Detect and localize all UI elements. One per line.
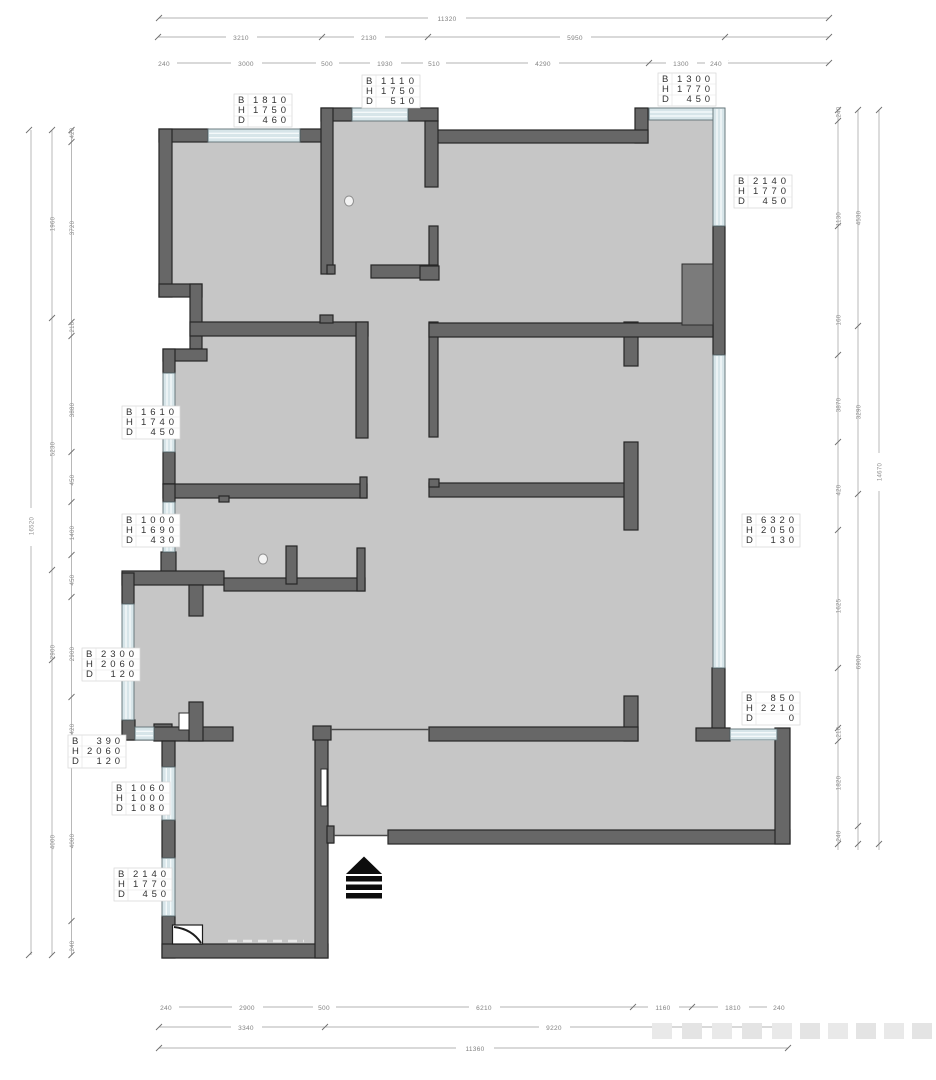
svg-text:240: 240: [70, 940, 76, 951]
svg-text:9220: 9220: [546, 1025, 562, 1032]
svg-text:14670: 14670: [878, 463, 884, 482]
svg-text:3870: 3870: [837, 397, 843, 412]
svg-text:240: 240: [160, 1005, 172, 1012]
svg-text:450: 450: [687, 94, 711, 105]
svg-text:1810: 1810: [725, 1005, 741, 1012]
svg-text:1960: 1960: [51, 216, 57, 231]
svg-text:4290: 4290: [535, 61, 551, 68]
svg-text:1300: 1300: [673, 61, 689, 68]
svg-text:5950: 5950: [567, 35, 583, 42]
svg-text:1130: 1130: [837, 212, 843, 226]
svg-text:3000: 3000: [238, 61, 254, 68]
svg-text:460: 460: [263, 115, 287, 126]
svg-text:5230: 5230: [51, 441, 57, 456]
svg-text:450: 450: [763, 196, 787, 207]
svg-text:510: 510: [391, 96, 415, 107]
svg-text:420: 420: [837, 484, 843, 495]
svg-text:450: 450: [151, 427, 175, 438]
svg-text:160: 160: [837, 314, 843, 325]
svg-text:1625: 1625: [837, 598, 843, 613]
svg-text:2900: 2900: [239, 1005, 255, 1012]
svg-text:210: 210: [70, 321, 76, 332]
svg-text:D: D: [746, 713, 753, 724]
svg-text:240: 240: [837, 106, 843, 117]
svg-text:1820: 1820: [837, 775, 843, 790]
svg-text:2900: 2900: [70, 646, 76, 661]
svg-text:4000: 4000: [51, 834, 57, 849]
svg-text:D: D: [738, 196, 745, 207]
svg-text:510: 510: [428, 61, 440, 68]
svg-text:210: 210: [837, 726, 843, 737]
svg-text:D: D: [86, 669, 93, 680]
svg-text:3210: 3210: [233, 35, 249, 42]
svg-text:450: 450: [70, 474, 76, 485]
svg-text:4000: 4000: [70, 833, 76, 848]
svg-text:D: D: [72, 756, 79, 767]
svg-text:1400: 1400: [70, 525, 76, 540]
svg-text:130: 130: [771, 535, 795, 546]
svg-text:D: D: [366, 96, 373, 107]
svg-text:D: D: [238, 115, 245, 126]
svg-text:D: D: [118, 889, 125, 900]
svg-text:240: 240: [710, 61, 722, 68]
svg-text:120: 120: [97, 756, 121, 767]
svg-text:3880: 3880: [70, 402, 76, 417]
svg-text:430: 430: [151, 535, 175, 546]
svg-text:420: 420: [70, 723, 76, 734]
svg-text:11320: 11320: [437, 16, 456, 23]
svg-text:240: 240: [773, 1005, 785, 1012]
svg-text:3340: 3340: [238, 1025, 254, 1032]
svg-text:4530: 4530: [857, 210, 863, 225]
svg-text:D: D: [126, 535, 133, 546]
svg-text:450: 450: [143, 889, 167, 900]
svg-text:11360: 11360: [465, 1046, 484, 1053]
svg-text:2130: 2130: [361, 35, 377, 42]
svg-text:450: 450: [70, 574, 76, 585]
svg-text:6210: 6210: [476, 1005, 492, 1012]
svg-text:D: D: [116, 803, 123, 814]
svg-text:3290: 3290: [857, 404, 863, 419]
svg-text:D: D: [746, 535, 753, 546]
svg-text:120: 120: [111, 669, 135, 680]
svg-text:1160: 1160: [655, 1005, 670, 1012]
svg-text:1930: 1930: [377, 61, 393, 68]
svg-text:240: 240: [158, 61, 170, 68]
svg-text:2900: 2900: [51, 644, 57, 659]
svg-text:16520: 16520: [30, 517, 36, 536]
svg-text:0: 0: [789, 713, 794, 724]
svg-text:3720: 3720: [70, 220, 76, 235]
svg-text:6900: 6900: [857, 654, 863, 669]
svg-text:D: D: [126, 427, 133, 438]
svg-text:500: 500: [318, 1005, 330, 1012]
svg-text:420: 420: [70, 127, 76, 138]
svg-text:D: D: [662, 94, 669, 105]
svg-text:240: 240: [837, 830, 843, 841]
svg-text:500: 500: [321, 61, 333, 68]
